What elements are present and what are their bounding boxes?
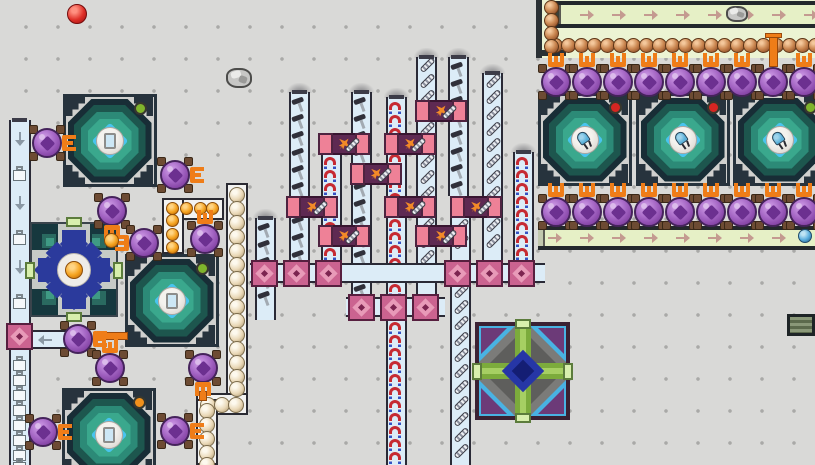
- claw-prong: [62, 436, 72, 440]
- belt-endcap: [538, 230, 545, 246]
- magnet-tip: [398, 447, 401, 451]
- assembler-block: [384, 196, 399, 218]
- magnet-tip: [389, 227, 392, 231]
- storage-pot[interactable]: [696, 197, 726, 227]
- magnet-tip: [389, 395, 392, 399]
- pot-shine: [610, 203, 616, 209]
- claw-arm-icon: [190, 167, 204, 183]
- belt-crossing-tile[interactable]: [380, 294, 407, 321]
- magnet-tip: [333, 165, 336, 169]
- storage-pot[interactable]: [789, 197, 815, 227]
- crafter-port: [113, 262, 123, 279]
- glass-item-icon: [104, 133, 116, 149]
- pot-shine: [579, 73, 585, 79]
- assembler-machine[interactable]: [350, 163, 402, 185]
- belt-crossing-tile[interactable]: [6, 323, 33, 350]
- pot-shine: [765, 203, 771, 209]
- item-magnet: [389, 102, 401, 114]
- status-light-green: [196, 262, 209, 275]
- claw-nub: [63, 430, 69, 434]
- magnet-tip: [398, 460, 401, 464]
- storage-pot[interactable]: [634, 67, 664, 97]
- arrow-head: [716, 233, 722, 243]
- claw-base: [641, 192, 657, 197]
- assembler-block: [415, 225, 430, 247]
- arrow-shaft: [548, 237, 556, 239]
- item-magnet: [389, 219, 401, 231]
- assembler-machine[interactable]: [415, 225, 467, 247]
- belt-arrow-right-icon: [676, 233, 690, 243]
- belt-arrow-right-icon: [676, 10, 690, 20]
- belt-arrow-right-icon: [612, 233, 626, 243]
- arrow-shaft: [19, 260, 21, 268]
- item-ball-orange[interactable]: [104, 233, 119, 248]
- belt-arrow-right-icon: [548, 233, 562, 243]
- assembler-block: [318, 225, 333, 247]
- belt-arrow-right-icon: [612, 10, 626, 20]
- storage-pot[interactable]: [665, 197, 695, 227]
- arrow-head: [748, 233, 754, 243]
- green-conveyor[interactable]: [538, 226, 815, 250]
- item-magnet: [389, 426, 401, 438]
- status-light-green: [804, 101, 815, 114]
- magnet-tip: [389, 369, 392, 373]
- item-magnet: [324, 170, 336, 182]
- hammer-handle: [457, 136, 463, 145]
- arrow-shaft: [740, 237, 748, 239]
- claw-base: [579, 62, 595, 67]
- item-magnet: [516, 235, 528, 247]
- magnet-tip: [389, 330, 392, 334]
- magnet-tip: [525, 243, 528, 247]
- storage-pot[interactable]: [63, 324, 93, 354]
- storage-pot[interactable]: [758, 67, 788, 97]
- claw-arm-icon: [672, 183, 688, 197]
- dark-module[interactable]: [787, 314, 815, 336]
- claw-base: [102, 348, 118, 353]
- claw-prong: [194, 179, 204, 183]
- resource-rock[interactable]: [226, 66, 252, 88]
- magnet-tip: [389, 253, 392, 257]
- belt-crossing-tile[interactable]: [348, 294, 375, 321]
- hammer-handle: [457, 85, 463, 94]
- item-magnet: [324, 157, 336, 169]
- item-magnet: [389, 387, 401, 399]
- storage-pot[interactable]: [190, 224, 220, 254]
- arrow-head: [588, 10, 594, 20]
- claw-arm-icon: [548, 53, 564, 67]
- belt-crossing-tile[interactable]: [412, 294, 439, 321]
- pot-shine: [703, 73, 709, 79]
- item-ball-copper: [544, 39, 559, 54]
- item-ball-cream: [228, 397, 244, 413]
- item-magnet: [516, 222, 528, 234]
- crate-body: [13, 170, 26, 181]
- claw-arm-icon: [641, 53, 657, 67]
- claw-base: [672, 62, 688, 67]
- claw-base: [796, 62, 812, 67]
- claw-base: [58, 424, 63, 440]
- pot-shine: [167, 422, 173, 428]
- storage-pot[interactable]: [603, 67, 633, 97]
- magnet-tip: [398, 356, 401, 360]
- item-magnet: [516, 248, 528, 260]
- reactor-machine[interactable]: [636, 93, 730, 186]
- transfer-pipe: [769, 36, 778, 67]
- crate-body: [13, 234, 26, 245]
- belt-crossing-tile[interactable]: [476, 260, 503, 287]
- item-magnet: [389, 232, 401, 244]
- machine-window: [95, 421, 123, 449]
- belt-cap: [389, 95, 404, 99]
- hammer-handle: [457, 68, 463, 77]
- magnet-tip: [525, 191, 528, 195]
- pot-shine: [734, 203, 740, 209]
- claw-prong: [62, 424, 72, 428]
- magnet-tip: [398, 434, 401, 438]
- magnet-tip: [389, 382, 392, 386]
- arrow-head: [780, 10, 786, 20]
- magnet-tip: [525, 217, 528, 221]
- storage-pot[interactable]: [541, 197, 571, 227]
- assembler-machine[interactable]: [318, 133, 370, 155]
- hammer-handle: [298, 239, 304, 248]
- item-magnet: [389, 348, 401, 360]
- claw-nub: [67, 141, 73, 145]
- belt-arrow-right-icon: [708, 10, 722, 20]
- belt-arrow-right-icon: [580, 10, 594, 20]
- storage-pot[interactable]: [572, 197, 602, 227]
- storage-pot[interactable]: [97, 196, 127, 226]
- magnet-tip: [398, 227, 401, 231]
- magnet-tip: [516, 178, 519, 182]
- magnet-tip: [398, 421, 401, 425]
- item-crate: [13, 166, 26, 181]
- claw-base: [190, 167, 195, 183]
- hammer-handle: [298, 154, 304, 163]
- assembler-machine[interactable]: [318, 225, 370, 247]
- storage-pot[interactable]: [696, 67, 726, 97]
- belt-arrow-right-icon: [772, 10, 786, 20]
- crate-body: [13, 375, 26, 386]
- storage-pot[interactable]: [572, 67, 602, 97]
- machine-window: [669, 126, 697, 154]
- item-magnet: [324, 248, 336, 260]
- arrow-head: [716, 10, 722, 20]
- belt-arrow-right-icon: [644, 233, 658, 243]
- assembler-machine[interactable]: [286, 196, 338, 218]
- belt-crossing-tile[interactable]: [315, 260, 342, 287]
- arrow-head: [652, 233, 658, 243]
- item-magnet: [389, 374, 401, 386]
- claw-arm-icon: [548, 183, 564, 197]
- hammer-handle: [298, 120, 304, 129]
- machine-window: [158, 287, 186, 315]
- glass-item-icon: [166, 293, 178, 309]
- item-ball-blue[interactable]: [798, 229, 812, 243]
- hammer-handle: [298, 222, 304, 231]
- claw-arm-icon: [610, 183, 626, 197]
- arrow-shaft: [580, 14, 588, 16]
- pot-shine: [734, 73, 740, 79]
- led-leg: [681, 143, 686, 149]
- led-leg: [783, 140, 787, 146]
- claw-arm-icon: [610, 53, 626, 67]
- hammer-handle: [298, 137, 304, 146]
- item-crate: [13, 386, 26, 401]
- magnet-tip: [516, 204, 519, 208]
- pot-shine: [796, 203, 802, 209]
- storage-pot[interactable]: [160, 160, 190, 190]
- hammer-handle: [360, 188, 366, 197]
- arrow-shaft: [612, 14, 620, 16]
- storage-pot[interactable]: [727, 197, 757, 227]
- crate-body: [13, 420, 26, 431]
- crate-body: [13, 360, 26, 371]
- storage-pot[interactable]: [95, 353, 125, 383]
- claw-prong: [194, 167, 204, 171]
- crafter-port: [66, 217, 82, 227]
- magnet-tip: [324, 178, 327, 182]
- crate-body: [13, 298, 26, 309]
- storage-pot[interactable]: [727, 67, 757, 97]
- arrow-shaft: [44, 339, 52, 341]
- storage-pot[interactable]: [789, 67, 815, 97]
- magnet-tip: [525, 165, 528, 169]
- arrow-head: [684, 233, 690, 243]
- claw-prong: [207, 386, 211, 396]
- storage-pot[interactable]: [28, 417, 58, 447]
- claw-arm-icon: [672, 53, 688, 67]
- pot-shine: [102, 359, 108, 365]
- magnet-tip: [324, 165, 327, 169]
- machine-window: [96, 127, 124, 155]
- storage-pot[interactable]: [603, 197, 633, 227]
- magnet-tip: [333, 178, 336, 182]
- claw-arm-icon: [765, 183, 781, 197]
- reactor-machine[interactable]: [62, 388, 156, 465]
- claw-base: [703, 192, 719, 197]
- arrow-shaft: [644, 237, 652, 239]
- claw-nub: [201, 387, 205, 393]
- mosaic-port: [563, 363, 573, 380]
- storage-pot[interactable]: [541, 67, 571, 97]
- belt-crossing-tile[interactable]: [251, 260, 278, 287]
- led-item-icon: [672, 128, 694, 151]
- resource-rock[interactable]: [726, 4, 748, 22]
- belt-crossing-tile[interactable]: [283, 260, 310, 287]
- led-item-icon: [574, 128, 596, 151]
- arrow-shaft: [19, 132, 21, 140]
- reactor-machine[interactable]: [125, 254, 219, 347]
- pot-shine: [548, 203, 554, 209]
- claw-base: [672, 192, 688, 197]
- magnet-tip: [516, 217, 519, 221]
- arrow-shaft: [644, 14, 652, 16]
- green-conveyor[interactable]: [554, 1, 815, 28]
- claw-base: [93, 331, 98, 347]
- reactor-machine[interactable]: [63, 94, 157, 187]
- assembler-block: [384, 133, 399, 155]
- glass-item-icon: [103, 427, 115, 443]
- claw-arm-icon: [195, 382, 211, 396]
- assembler-machine[interactable]: [384, 196, 436, 218]
- arrow-shaft: [804, 14, 812, 16]
- storage-pot[interactable]: [665, 67, 695, 97]
- led-leg: [778, 143, 783, 149]
- status-light-red: [707, 101, 720, 114]
- magnet-tip: [398, 382, 401, 386]
- led-leg: [583, 143, 588, 149]
- hammer-handle: [457, 170, 463, 179]
- item-magnet: [389, 400, 401, 412]
- assembler-block: [450, 196, 465, 218]
- claw-base: [610, 192, 626, 197]
- hammer-handle: [360, 205, 366, 214]
- claw-prong: [66, 135, 76, 139]
- hammer-handle: [457, 153, 463, 162]
- belt-crossing-tile[interactable]: [444, 260, 471, 287]
- assembler-machine[interactable]: [450, 196, 502, 218]
- assembler-machine[interactable]: [415, 100, 467, 122]
- arrow-head: [15, 204, 25, 210]
- belt-arrow-right-icon: [804, 10, 815, 20]
- pot-shine: [70, 330, 76, 336]
- claw-base: [579, 192, 595, 197]
- reactor-machine[interactable]: [733, 93, 815, 186]
- item-magnet: [516, 209, 528, 221]
- storage-pot[interactable]: [758, 197, 788, 227]
- storage-pot[interactable]: [634, 197, 664, 227]
- claw-base: [124, 235, 129, 251]
- hammer-handle: [360, 103, 366, 112]
- magnet-tip: [398, 369, 401, 373]
- pot-shine: [548, 73, 554, 79]
- pot-shine: [167, 166, 173, 172]
- belt-arrow-down-icon: [15, 132, 25, 146]
- mosaic-machine[interactable]: [475, 322, 570, 420]
- claw-base: [190, 423, 195, 439]
- magnet-tip: [389, 240, 392, 244]
- magnet-tip: [389, 123, 392, 127]
- led-item-icon: [769, 128, 791, 151]
- claw-prong: [97, 331, 107, 335]
- claw-base: [104, 225, 120, 230]
- magnet-tip: [389, 434, 392, 438]
- arrow-shaft: [772, 14, 780, 16]
- belt-cap: [516, 150, 531, 154]
- belt-cap: [451, 55, 466, 59]
- claw-arm-icon: [796, 183, 812, 197]
- item-ball-red[interactable]: [67, 4, 87, 24]
- item-magnet: [389, 245, 401, 257]
- crafter-port: [66, 312, 82, 322]
- storage-pot[interactable]: [160, 416, 190, 446]
- pot-shine: [195, 359, 201, 365]
- magnet-tip: [516, 243, 519, 247]
- claw-prong: [194, 423, 204, 427]
- arrow-shaft: [676, 14, 684, 16]
- pot-shine: [672, 203, 678, 209]
- belt-cap: [258, 216, 273, 220]
- arrow-shaft: [580, 237, 588, 239]
- magnet-tip: [398, 110, 401, 114]
- claw-base: [734, 192, 750, 197]
- magnet-tip: [398, 253, 401, 257]
- pot-shine: [610, 73, 616, 79]
- magnet-tip: [389, 460, 392, 464]
- magnet-tip: [398, 395, 401, 399]
- magnet-tip: [389, 188, 392, 192]
- belt-cap: [12, 118, 27, 122]
- arrow-shaft: [612, 237, 620, 239]
- claw-arm-icon: [197, 210, 213, 224]
- arrow-shaft: [772, 237, 780, 239]
- pipe-cap: [765, 33, 782, 38]
- claw-base: [610, 62, 626, 67]
- magnet-tip: [398, 330, 401, 334]
- pot-shine: [136, 234, 142, 240]
- storage-pot[interactable]: [129, 228, 159, 258]
- mosaic-port: [515, 413, 531, 423]
- claw-arm-icon: [579, 53, 595, 67]
- item-magnet: [389, 452, 401, 464]
- assembler-machine[interactable]: [384, 133, 436, 155]
- item-crate: [13, 230, 26, 245]
- claw-prong: [194, 435, 204, 439]
- claw-arm-icon: [190, 423, 204, 439]
- pot-shine: [765, 73, 771, 79]
- game-viewport: [0, 0, 815, 465]
- item-magnet: [389, 439, 401, 451]
- pot-shine: [641, 203, 647, 209]
- claw-nub: [195, 429, 201, 433]
- claw-arm-icon: [579, 183, 595, 197]
- pot-shine: [672, 73, 678, 79]
- magnet-tip: [389, 110, 392, 114]
- storage-pot[interactable]: [32, 128, 62, 158]
- arrow-head: [15, 140, 25, 146]
- arrow-head: [556, 233, 562, 243]
- claw-base: [548, 62, 564, 67]
- claw-arm-icon: [703, 183, 719, 197]
- claw-base: [197, 219, 213, 224]
- item-magnet: [324, 183, 336, 195]
- claw-base: [62, 135, 67, 151]
- storage-pot[interactable]: [188, 353, 218, 383]
- claw-base: [195, 382, 211, 387]
- magnet-tip: [398, 240, 401, 244]
- item-magnet: [516, 183, 528, 195]
- reactor-machine[interactable]: [538, 93, 632, 186]
- item-magnet: [516, 170, 528, 182]
- hammer-handle: [457, 187, 463, 196]
- claw-prong: [66, 147, 76, 151]
- belt-crossing-tile[interactable]: [508, 260, 535, 287]
- crafter-port: [25, 262, 35, 279]
- arrow-head: [748, 10, 754, 20]
- belt-cap: [292, 90, 307, 94]
- item-ball-orange: [180, 202, 193, 215]
- led-leg: [686, 140, 690, 146]
- arrow-head: [652, 10, 658, 20]
- claw-arm-icon: [62, 135, 76, 151]
- magnet-tip: [516, 230, 519, 234]
- pot-shine: [39, 134, 45, 140]
- magnet-tip: [324, 191, 327, 195]
- belt-arrow-left-icon: [38, 335, 52, 345]
- belt-arrow-right-icon: [772, 233, 786, 243]
